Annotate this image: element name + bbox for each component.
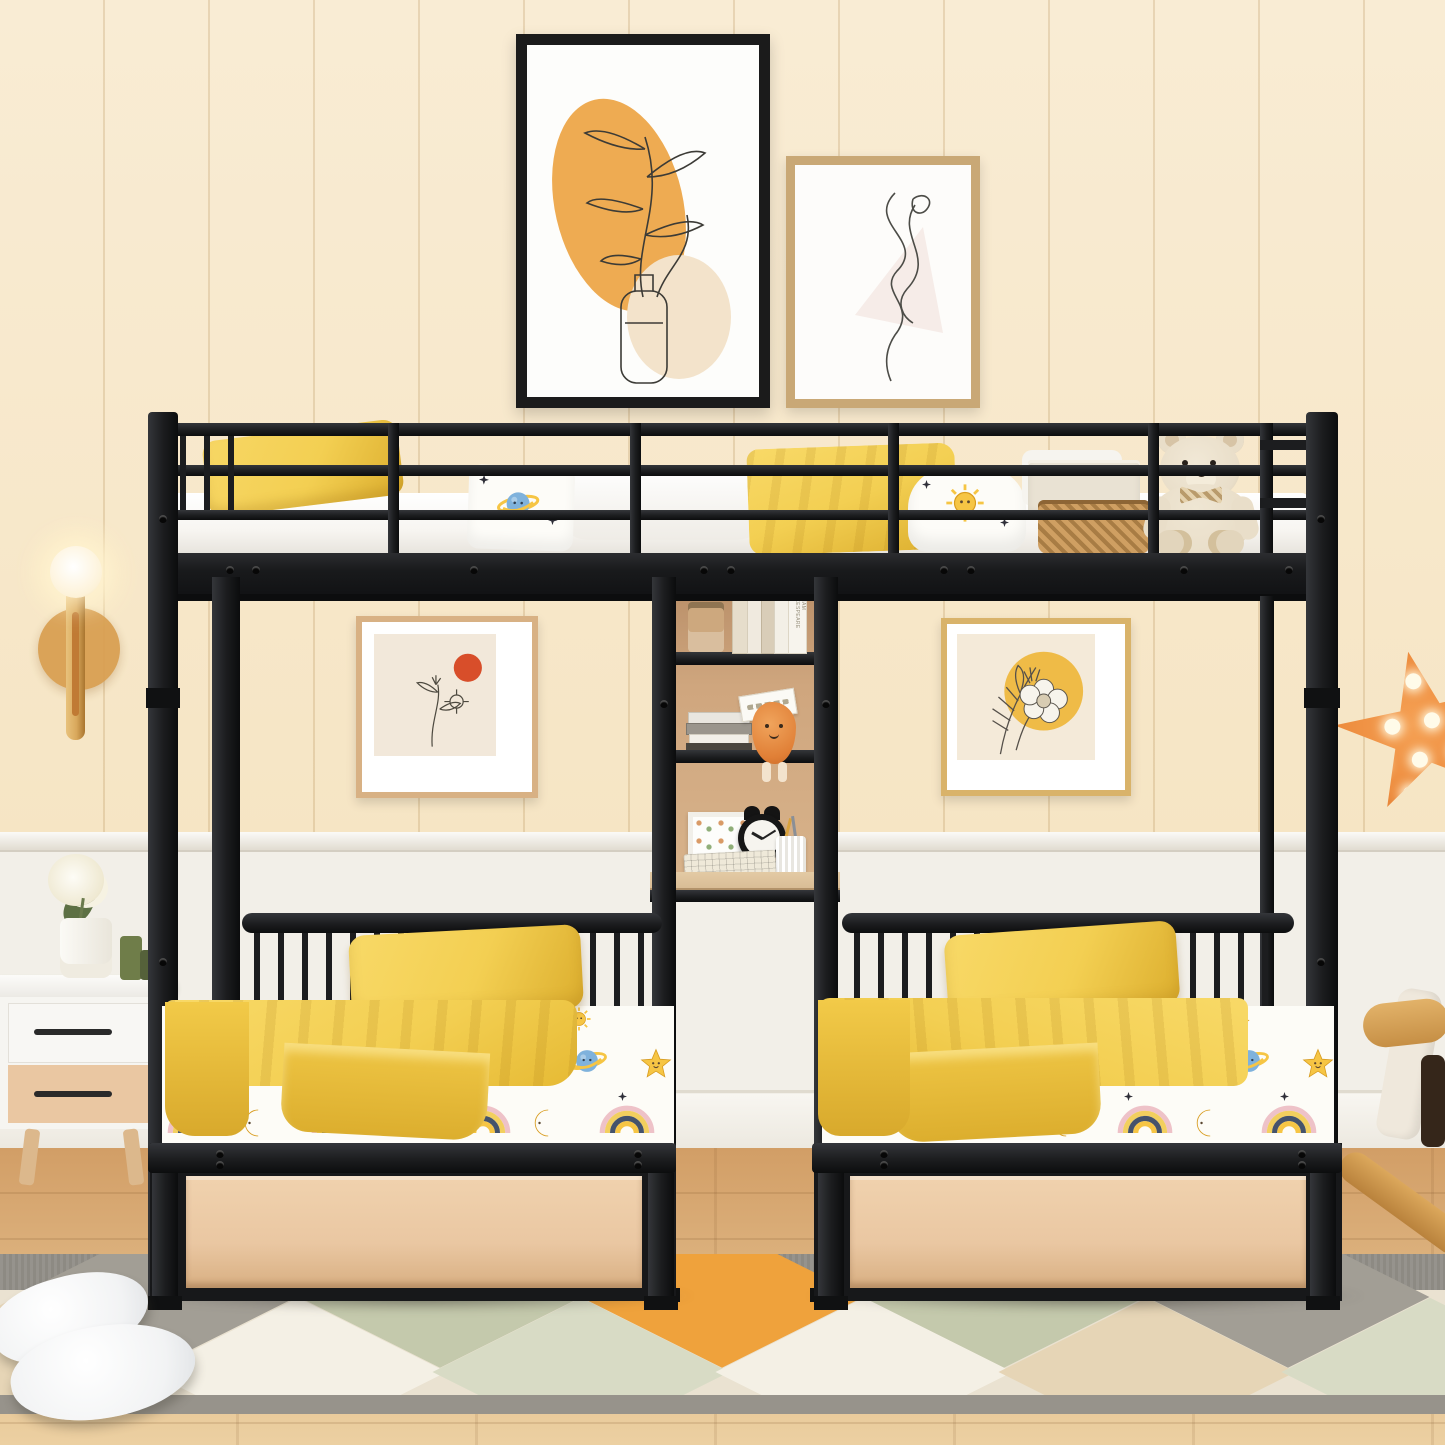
- twin-blanket-left-drop: [165, 1002, 249, 1136]
- bed-foot: [644, 1296, 678, 1310]
- toy-leg: [762, 762, 771, 782]
- bedroom-photo: WILLIAM SHAKESPEARE: [0, 0, 1445, 1445]
- toy-eye: [779, 724, 783, 728]
- wicker-basket: [1038, 500, 1150, 554]
- bolt: [226, 566, 234, 574]
- nightstand-body: [0, 997, 168, 1129]
- twin-rail-left: [148, 1143, 676, 1173]
- bolt: [660, 700, 668, 708]
- bolt: [216, 1150, 224, 1158]
- shelf-2: [652, 750, 838, 763]
- bolt: [822, 700, 830, 708]
- sconce-globe: [50, 546, 102, 598]
- wall-art-flower: [941, 618, 1131, 796]
- star-bulb: [1401, 785, 1419, 803]
- bed-leg: [648, 1173, 674, 1303]
- desk-top: [650, 872, 840, 892]
- drawer-handle: [34, 1091, 112, 1097]
- rocking-toy-handle: [1361, 997, 1445, 1050]
- vase: [60, 918, 112, 978]
- desk-frame-bar: [650, 890, 840, 902]
- toy-leg: [778, 762, 787, 782]
- rail-connector: [888, 423, 899, 553]
- candle-jar: [688, 602, 724, 652]
- loft-duvet: [555, 466, 770, 540]
- twin-blanket-right-drop: [818, 1000, 910, 1136]
- bolt: [634, 1161, 642, 1169]
- drawer-right: [850, 1176, 1306, 1288]
- rocking-toy-dark: [1421, 1055, 1445, 1147]
- moon-sun-art: [374, 634, 496, 756]
- bolt: [470, 566, 478, 574]
- bolt: [159, 515, 167, 523]
- pattern-motifs: [467, 464, 576, 552]
- bolt: [159, 958, 167, 966]
- bolt: [880, 1161, 888, 1169]
- clock-minute-hand: [761, 830, 776, 840]
- toy-mouth: [769, 732, 779, 739]
- loft-deck-lip: [148, 594, 1338, 601]
- nightstand-leg: [19, 1128, 41, 1185]
- star-bulb: [1410, 750, 1429, 769]
- bed-foot: [814, 1296, 848, 1310]
- twin-rail-right: [812, 1143, 1342, 1173]
- bolt: [1298, 1161, 1306, 1169]
- rail-connector: [388, 423, 399, 553]
- rail-connector: [1148, 423, 1159, 553]
- wall-art-moon: [356, 616, 538, 798]
- teddy-bear: [1146, 426, 1272, 556]
- bolt: [216, 1161, 224, 1169]
- star-lamp-body: [1332, 650, 1445, 812]
- rug-near-band: [0, 1395, 1445, 1414]
- toy-eye: [765, 724, 769, 728]
- star-bulb: [1404, 672, 1423, 691]
- bolt: [1298, 1150, 1306, 1158]
- bed-foot: [1306, 1296, 1340, 1310]
- bolt: [252, 566, 260, 574]
- bolt: [727, 566, 735, 574]
- bed-leg: [818, 1173, 844, 1303]
- sconce-arm-stripe: [72, 612, 79, 716]
- drawer-left: [186, 1176, 642, 1288]
- twin-blanket-left-fold: [280, 1043, 490, 1142]
- botanical-line-art: [527, 45, 759, 397]
- bolt: [1317, 515, 1325, 523]
- bolt: [1285, 566, 1293, 574]
- star-bulb: [1368, 755, 1387, 774]
- guard-rail-top: [148, 423, 1338, 436]
- bolt: [700, 566, 708, 574]
- headend-spindles: [180, 436, 246, 510]
- book: [761, 596, 775, 654]
- star-bulb: [1383, 717, 1402, 736]
- book: [732, 598, 748, 654]
- wall-art-figure: [786, 156, 980, 408]
- loft-pillow-pattern: [467, 464, 576, 552]
- book: [747, 592, 762, 654]
- stacked-book: [686, 743, 752, 750]
- drawer-handle: [34, 1029, 112, 1035]
- nightstand-leg: [123, 1128, 145, 1185]
- star-lamp: [1332, 650, 1445, 812]
- candlestick: [120, 936, 142, 980]
- bed-foot: [148, 1296, 182, 1310]
- bed-leg: [152, 1173, 178, 1303]
- flower-bloom: [48, 854, 104, 906]
- rail-connector: [630, 423, 641, 553]
- bolt: [1317, 958, 1325, 966]
- rocking-toy-runner: [1334, 1146, 1445, 1260]
- guard-rail-mid: [148, 465, 1338, 476]
- bolt: [1180, 566, 1188, 574]
- guard-rail-low: [148, 510, 1338, 520]
- star-bulb: [1422, 711, 1441, 730]
- loft-deck: [148, 553, 1338, 596]
- bolt: [967, 566, 975, 574]
- bolt: [880, 1150, 888, 1158]
- bolt: [634, 1150, 642, 1158]
- post-joint: [1304, 688, 1340, 708]
- rocking-toy: [1335, 975, 1445, 1275]
- flower-sun-art: [957, 634, 1095, 760]
- twin-blanket-right-fold: [886, 1043, 1102, 1144]
- wall-art-botanical: [516, 34, 770, 408]
- bolt: [940, 566, 948, 574]
- figure-line-art: [795, 165, 971, 399]
- bed-leg: [1310, 1173, 1336, 1303]
- post-joint: [146, 688, 180, 708]
